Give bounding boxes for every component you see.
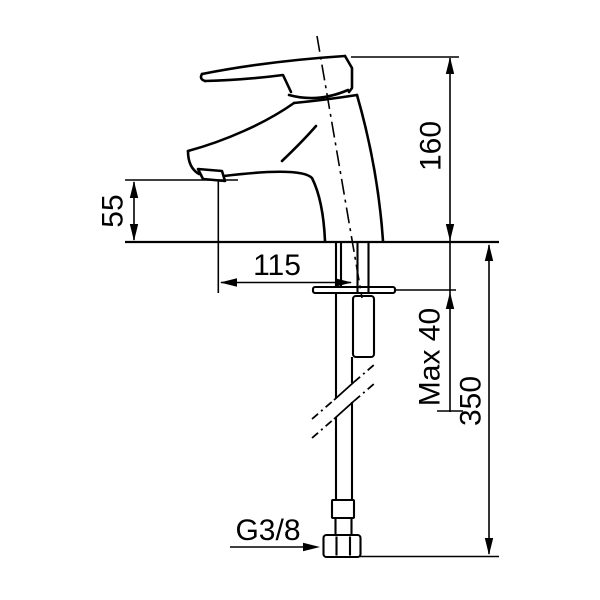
spout-top-edge — [188, 103, 294, 151]
arrowhead-down-icon — [130, 224, 138, 241]
arrowhead-right-icon — [335, 278, 352, 286]
break-line-lower — [312, 419, 334, 438]
dimension-label-spout-reach: 115 — [253, 249, 301, 282]
faucet-body-right-edge — [357, 95, 383, 241]
arrowhead-left-icon — [220, 278, 237, 286]
break-line-upper — [354, 364, 375, 382]
break-line-lower — [354, 383, 375, 401]
dimension-label-max-deck: Max 40 — [414, 308, 447, 406]
body-accent-curve — [282, 126, 316, 161]
dimension-label-total-height: 160 — [415, 121, 448, 171]
break-line-upper — [312, 400, 334, 419]
dimension-label-spout-height: 55 — [97, 194, 130, 227]
arrowhead-down-icon — [485, 538, 493, 555]
dimension-spout-height: 55 — [97, 181, 139, 241]
arrowhead-right-icon — [303, 543, 320, 551]
under-deck-assembly — [312, 243, 395, 557]
mounting-flange — [313, 287, 395, 293]
cartridge-cap-right-edge — [345, 56, 352, 92]
lever-handle-underside — [205, 75, 291, 92]
thread-size-label: G3/8 — [235, 514, 300, 547]
dimension-spout-reach: 115 — [220, 249, 352, 287]
mounting-nut-block — [353, 296, 374, 357]
hose-collar — [332, 500, 354, 518]
dimension-label-hose-length: 350 — [455, 376, 488, 426]
hose-neck — [336, 518, 352, 535]
technical-drawing: 55 115 160 Max 40 350 G3/8 — [0, 0, 600, 600]
arrowhead-up-icon — [130, 181, 138, 198]
center-axis-line — [317, 36, 362, 298]
dimension-hose-length: 350 — [455, 244, 494, 555]
arrowhead-down-icon — [446, 224, 454, 241]
hex-nut — [324, 535, 361, 557]
pipe-break-mark — [312, 364, 375, 438]
arrowhead-up-icon — [446, 292, 454, 309]
arrowhead-up-icon — [485, 244, 493, 261]
thread-callout: G3/8 — [230, 514, 320, 551]
faucet-dimension-diagram: 55 115 160 Max 40 350 G3/8 — [0, 0, 600, 600]
arrowhead-up-icon — [446, 57, 454, 74]
faucet-outline — [188, 56, 383, 241]
spout-underside — [224, 172, 325, 241]
